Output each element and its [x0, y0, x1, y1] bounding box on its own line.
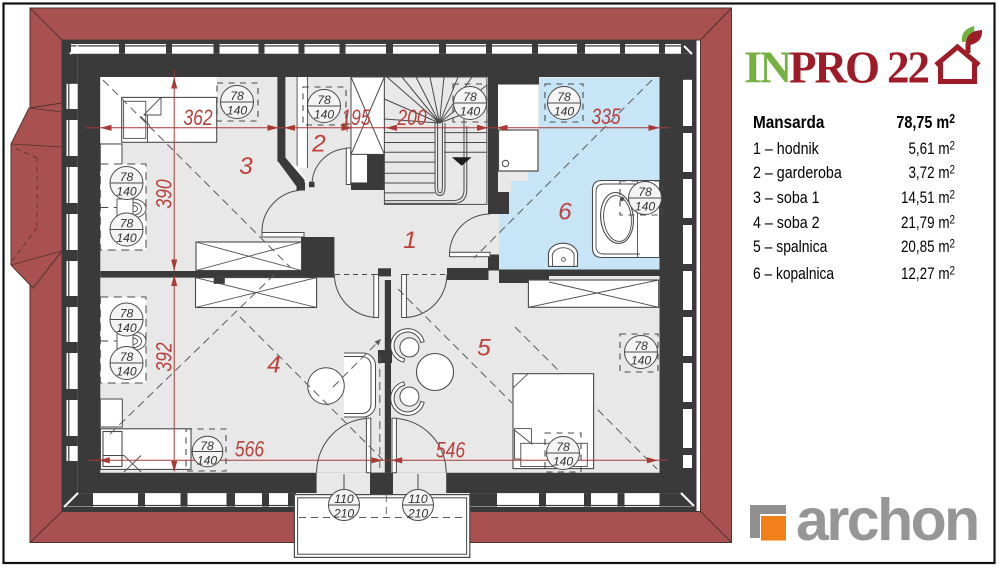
svg-text:IN: IN [744, 43, 792, 93]
svg-text:78: 78 [634, 339, 648, 353]
svg-text:3,72 m2: 3,72 m2 [908, 164, 955, 183]
svg-text:78: 78 [638, 185, 652, 199]
svg-text:140: 140 [116, 321, 137, 335]
svg-text:78: 78 [120, 307, 134, 321]
svg-text:78: 78 [556, 440, 570, 454]
svg-text:78: 78 [120, 350, 134, 364]
svg-text:110: 110 [334, 492, 354, 506]
svg-text:566: 566 [235, 438, 265, 463]
svg-text:20,85 m2: 20,85 m2 [901, 238, 955, 257]
svg-text:210: 210 [333, 507, 355, 521]
svg-text:140: 140 [554, 105, 575, 119]
svg-text:78: 78 [120, 170, 134, 184]
svg-text:140: 140 [197, 454, 218, 468]
svg-text:78: 78 [200, 439, 214, 453]
svg-text:PRO: PRO [789, 43, 878, 93]
svg-text:390: 390 [153, 179, 178, 209]
svg-text:5: 5 [477, 335, 491, 362]
svg-text:22: 22 [887, 43, 929, 93]
svg-text:6: 6 [558, 199, 572, 226]
svg-text:140: 140 [116, 231, 137, 245]
svg-text:14,51 m2: 14,51 m2 [901, 189, 955, 208]
svg-text:140: 140 [116, 365, 137, 379]
svg-text:140: 140 [553, 455, 574, 469]
svg-text:6 – kopalnica: 6 – kopalnica [753, 265, 835, 283]
svg-text:1: 1 [403, 227, 417, 254]
svg-text:12,27 m2: 12,27 m2 [901, 265, 955, 284]
svg-text:140: 140 [227, 104, 248, 118]
svg-text:362: 362 [183, 106, 212, 131]
svg-text:2: 2 [311, 131, 326, 158]
svg-text:Mansarda: Mansarda [753, 112, 825, 132]
svg-text:archon: archon [796, 487, 978, 553]
svg-text:78: 78 [120, 217, 134, 231]
svg-text:140: 140 [116, 185, 137, 199]
svg-text:4 – soba 2: 4 – soba 2 [753, 214, 820, 232]
svg-text:78: 78 [463, 90, 477, 104]
svg-text:546: 546 [436, 439, 466, 464]
svg-text:2 – garderoba: 2 – garderoba [753, 164, 842, 182]
svg-text:21,79 m2: 21,79 m2 [901, 214, 955, 233]
svg-text:78: 78 [230, 89, 244, 103]
svg-text:140: 140 [314, 108, 335, 122]
svg-text:78,75 m2: 78,75 m2 [896, 112, 955, 132]
svg-text:1 – hodnik: 1 – hodnik [753, 140, 819, 158]
svg-text:78: 78 [317, 93, 331, 107]
svg-text:3: 3 [239, 153, 253, 180]
svg-text:4: 4 [267, 352, 281, 379]
svg-text:210: 210 [407, 507, 429, 521]
svg-text:335: 335 [591, 105, 621, 130]
svg-text:140: 140 [631, 354, 652, 368]
svg-text:78: 78 [557, 90, 571, 104]
svg-text:140: 140 [460, 105, 481, 119]
svg-text:140: 140 [635, 200, 656, 214]
svg-text:392: 392 [153, 342, 178, 371]
svg-text:110: 110 [408, 492, 428, 506]
svg-text:200: 200 [397, 106, 428, 131]
svg-text:3 – soba 1: 3 – soba 1 [753, 189, 820, 207]
svg-text:5,61 m2: 5,61 m2 [908, 140, 955, 159]
svg-text:5 – spalnica: 5 – spalnica [753, 238, 828, 256]
